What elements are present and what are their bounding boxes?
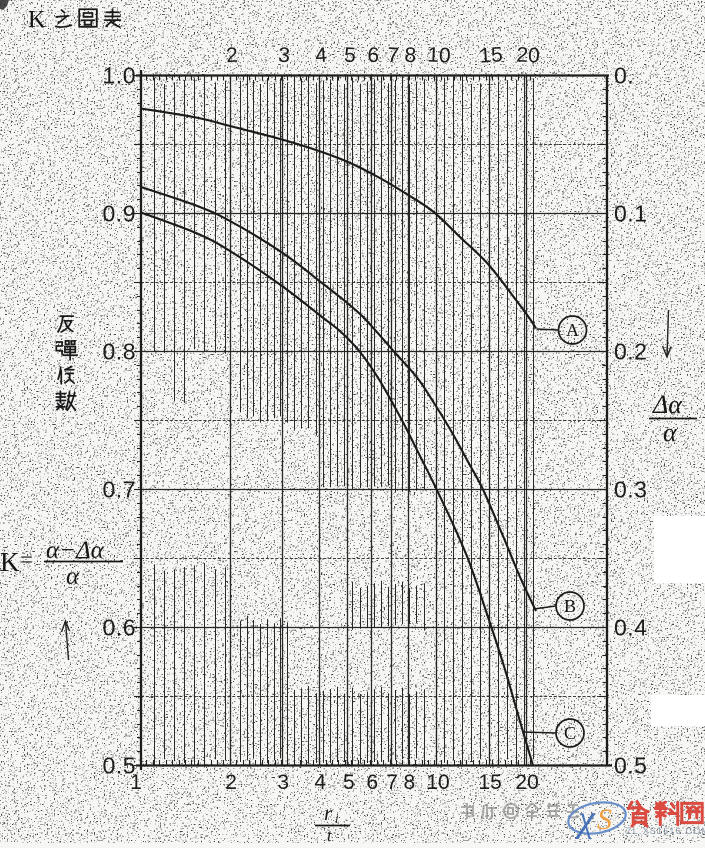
svg-text:A: A — [566, 320, 579, 340]
svg-text:0.5: 0.5 — [103, 753, 136, 779]
svg-text:0.6: 0.6 — [103, 615, 136, 641]
svg-text:χ: χ — [574, 798, 596, 840]
svg-text:0.7: 0.7 — [103, 477, 136, 503]
svg-text:i: i — [335, 812, 338, 826]
svg-text:1.0: 1.0 — [103, 63, 136, 89]
svg-text:0.3: 0.3 — [614, 477, 647, 503]
svg-text:α: α — [663, 418, 678, 447]
svg-text:15: 15 — [478, 771, 501, 794]
svg-text:5: 5 — [343, 44, 356, 68]
svg-text:6: 6 — [367, 44, 380, 68]
svg-text:0.: 0. — [614, 63, 634, 89]
svg-text:ZL.XS1616.COM: ZL.XS1616.COM — [626, 826, 705, 836]
svg-text:4: 4 — [314, 771, 326, 794]
svg-text:10: 10 — [427, 43, 452, 67]
svg-text:C: C — [564, 723, 576, 743]
svg-text:B: B — [564, 596, 576, 616]
svg-text:10: 10 — [426, 771, 449, 794]
svg-text:20: 20 — [516, 43, 541, 67]
svg-text:=: = — [20, 547, 33, 572]
svg-text:5: 5 — [343, 771, 355, 794]
svg-text:0.9: 0.9 — [103, 201, 136, 227]
svg-text:Δα: Δα — [652, 390, 683, 419]
svg-text:2: 2 — [225, 44, 238, 68]
svg-text:K: K — [28, 7, 46, 33]
svg-text:K: K — [0, 547, 20, 577]
svg-text:0.8: 0.8 — [103, 339, 136, 365]
svg-text:7: 7 — [387, 44, 400, 68]
svg-text:3: 3 — [278, 44, 291, 68]
svg-text:8: 8 — [403, 771, 415, 794]
svg-text:α−Δα: α−Δα — [46, 537, 105, 564]
svg-text:0.4: 0.4 — [614, 615, 647, 641]
svg-text:20: 20 — [515, 771, 538, 794]
svg-text:15: 15 — [479, 43, 504, 68]
svg-text:0.2: 0.2 — [614, 339, 647, 365]
svg-text:0.5: 0.5 — [614, 753, 647, 779]
svg-text:0.1: 0.1 — [614, 201, 647, 227]
svg-text:S: S — [597, 803, 612, 836]
svg-text:2: 2 — [225, 771, 237, 794]
svg-text:8: 8 — [404, 44, 417, 68]
svg-text:3: 3 — [277, 771, 289, 794]
svg-text:α: α — [66, 563, 80, 590]
svg-text:6: 6 — [366, 771, 378, 794]
svg-text:4: 4 — [315, 44, 329, 68]
svg-text:7: 7 — [386, 771, 398, 794]
svg-text:r: r — [324, 801, 333, 825]
